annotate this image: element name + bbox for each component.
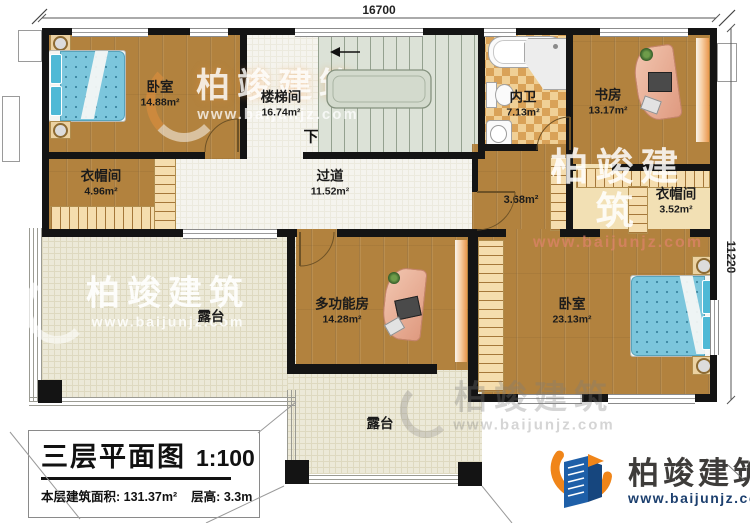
stairs (318, 34, 478, 159)
window (190, 28, 228, 37)
window (608, 394, 695, 404)
plant-icon (388, 272, 400, 284)
terrace-left-floor (42, 236, 296, 398)
dimension-right: 11220 (724, 241, 738, 274)
room-label-hall: 3.68m² (504, 193, 539, 207)
terrace-parapet (295, 472, 465, 484)
room-area: 16.74m² (261, 106, 302, 120)
headboard-cushion (50, 54, 62, 84)
room-area: 13.17m² (588, 104, 627, 118)
computer-monitor (648, 72, 672, 92)
terrace-parapet (29, 394, 296, 406)
room-area: 11.52m² (311, 185, 350, 199)
wall-segment (566, 151, 573, 237)
wall-segment (287, 364, 437, 374)
multi-room-wardrobe (455, 240, 467, 362)
room-name: 衣帽间 (81, 167, 122, 185)
study-wardrobe (696, 38, 709, 142)
floor-area-text: 本层建筑面积: 131.37m² (41, 486, 177, 505)
room-area: 23.13m² (552, 313, 591, 327)
dimension-top: 16700 (362, 3, 395, 17)
room-name: 露台 (367, 415, 394, 433)
room-area: 3.52m² (656, 203, 697, 217)
headboard-cushion (50, 86, 62, 116)
lamp-icon (53, 36, 68, 51)
company-name: 柏竣建筑 (628, 458, 750, 491)
wall-segment (472, 152, 478, 192)
room-name: 衣帽间 (656, 185, 697, 203)
wall-segment (484, 144, 538, 151)
terrace-parapet (29, 228, 42, 402)
stair-down-label: 下 (303, 126, 318, 147)
window (600, 28, 688, 37)
room-label-terrace-bottom: 露台 (367, 415, 394, 433)
floor-area-value: 131.37m² (124, 490, 178, 504)
company-website: www.baijunjz.com (628, 490, 750, 506)
room-label-study: 书房 13.17m² (588, 86, 627, 117)
room-label-closet-right: 衣帽间 3.52m² (656, 185, 697, 216)
room-area: 14.88m² (140, 96, 179, 110)
wall-segment (42, 229, 183, 237)
shower-drain-icon (553, 44, 558, 49)
room-name: 卧室 (552, 295, 591, 313)
exterior-ac-box (2, 96, 20, 162)
wall-segment (240, 28, 247, 159)
wall-segment (468, 229, 478, 402)
title-rule (41, 477, 231, 480)
window (72, 28, 148, 37)
window (484, 28, 516, 37)
room-label-multi-room: 多功能房 14.28m² (315, 295, 369, 326)
terrace-post (38, 380, 62, 403)
floor-area-label: 本层建筑面积: (41, 490, 120, 504)
room-name: 露台 (198, 308, 225, 326)
room-name: 书房 (588, 86, 627, 104)
floor-plan: 16700 11220 卧室 14.88m² 楼梯间 16.74m² 衣帽间 4… (0, 0, 750, 523)
floor-height-text: 层高: 3.3m (191, 486, 252, 505)
room-area: 14.28m² (315, 313, 369, 327)
window (295, 28, 423, 37)
closet-left-hanger-rack (50, 206, 156, 230)
company-logo-icon (534, 448, 620, 516)
wall-segment (337, 229, 468, 237)
sink-basin (490, 125, 507, 143)
room-area: 7.13m² (506, 106, 539, 120)
wall-segment (612, 164, 717, 171)
closet-right-shelf (628, 186, 648, 234)
wall-segment (478, 229, 506, 237)
room-label-terrace-left: 露台 (198, 308, 225, 326)
terrace-post (285, 460, 309, 484)
plan-title: 三层平面图 (41, 435, 186, 474)
plant-icon (640, 48, 653, 61)
room-name: 楼梯间 (261, 88, 302, 106)
wall-segment (287, 229, 295, 374)
wall-segment (303, 152, 484, 159)
room-label-bedroom-br: 卧室 23.13m² (552, 295, 591, 326)
room-label-corridor: 过道 11.52m² (311, 167, 350, 198)
lamp-icon (53, 123, 68, 138)
terrace-post (458, 462, 482, 486)
room-label-stairwell: 楼梯间 16.74m² (261, 88, 302, 119)
room-name: 卧室 (140, 78, 179, 96)
room-area: 3.68m² (504, 193, 539, 207)
wall-segment (478, 28, 485, 159)
room-label-closet-left: 衣帽间 4.96m² (81, 167, 122, 198)
wall-segment (566, 28, 573, 151)
room-name: 多功能房 (315, 295, 369, 313)
exterior-ac-box (717, 43, 737, 82)
bedroom-br-closet (478, 240, 504, 392)
room-area: 4.96m² (81, 185, 122, 199)
plan-scale: 1:100 (196, 445, 255, 472)
floor-height-label: 层高: (191, 490, 220, 504)
title-subtitle: 本层建筑面积: 131.37m² 层高: 3.3m (41, 486, 259, 505)
room-label-bathroom: 内卫 7.13m² (506, 88, 539, 119)
company-logo-text: 柏竣建筑 www.baijunjz.com (628, 458, 750, 507)
room-name: 内卫 (506, 88, 539, 106)
company-logo: 柏竣建筑 www.baijunjz.com (534, 448, 750, 516)
closet-left-shelf (154, 156, 176, 231)
exterior-ac-box (18, 30, 42, 62)
title-block: 三层平面图 1:100 本层建筑面积: 131.37m² 层高: 3.3m (28, 430, 260, 518)
room-name: 过道 (311, 167, 350, 185)
wall-segment (566, 229, 600, 237)
wall-segment (42, 28, 49, 236)
window (710, 300, 719, 355)
floor-height-value: 3.3m (224, 490, 253, 504)
window (183, 229, 277, 239)
window (518, 394, 582, 404)
title-row: 三层平面图 1:100 (41, 435, 259, 474)
room-label-bedroom-tl: 卧室 14.88m² (140, 78, 179, 109)
wall-segment (42, 152, 205, 159)
wall-segment (690, 229, 717, 237)
